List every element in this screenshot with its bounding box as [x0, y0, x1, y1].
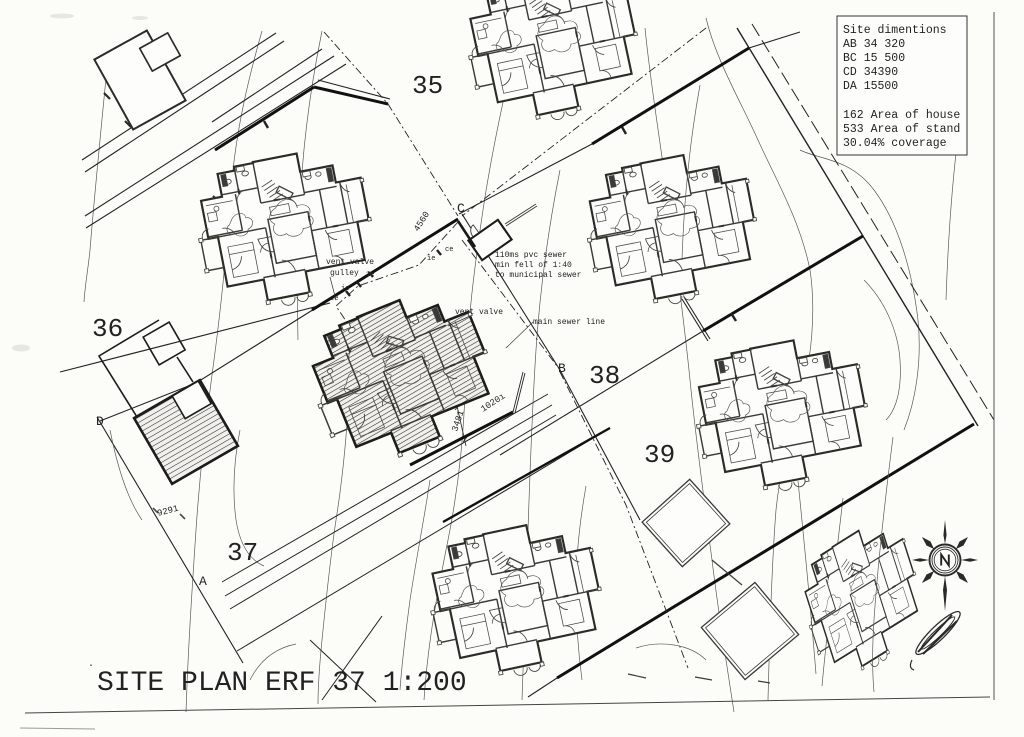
- svg-text:ie: ie: [427, 255, 435, 263]
- svg-text:BC 15 500: BC 15 500: [843, 52, 905, 65]
- svg-text:36: 36: [92, 314, 123, 344]
- svg-text:D: D: [96, 414, 104, 429]
- svg-text:30.04% coverage: 30.04% coverage: [843, 137, 947, 150]
- svg-text:AB 34 320: AB 34 320: [843, 38, 905, 51]
- svg-text:B: B: [558, 361, 566, 376]
- svg-text:CD 34390: CD 34390: [843, 66, 898, 79]
- svg-text:gulley: gulley: [330, 269, 359, 278]
- svg-text:39: 39: [644, 440, 675, 470]
- svg-text:38: 38: [589, 361, 620, 391]
- svg-text:SITE PLAN ERF 37 1:200: SITE PLAN ERF 37 1:200: [97, 668, 467, 699]
- svg-text:ce: ce: [445, 246, 453, 254]
- svg-text:vent valve: vent valve: [326, 258, 374, 267]
- svg-text:min fell of 1:40: min fell of 1:40: [495, 261, 572, 270]
- svg-text:110ms pvc sewer: 110ms pvc sewer: [495, 251, 567, 260]
- svg-text:to municipal sewer: to municipal sewer: [495, 271, 582, 280]
- svg-text:37: 37: [227, 538, 258, 568]
- svg-text:·: ·: [88, 661, 94, 672]
- svg-text:DA 15500: DA 15500: [843, 80, 898, 93]
- svg-text:C: C: [457, 201, 465, 216]
- svg-text:162 Area of house: 162 Area of house: [843, 109, 960, 122]
- svg-text:vent valve: vent valve: [455, 308, 503, 317]
- svg-text:35: 35: [412, 71, 443, 101]
- svg-text:main sewer line: main sewer line: [533, 318, 605, 327]
- svg-text:A: A: [199, 574, 207, 589]
- svg-text:533 Area of stand: 533 Area of stand: [843, 123, 960, 136]
- svg-text:ce: ce: [330, 295, 338, 303]
- svg-text:Site dimentions: Site dimentions: [843, 24, 947, 37]
